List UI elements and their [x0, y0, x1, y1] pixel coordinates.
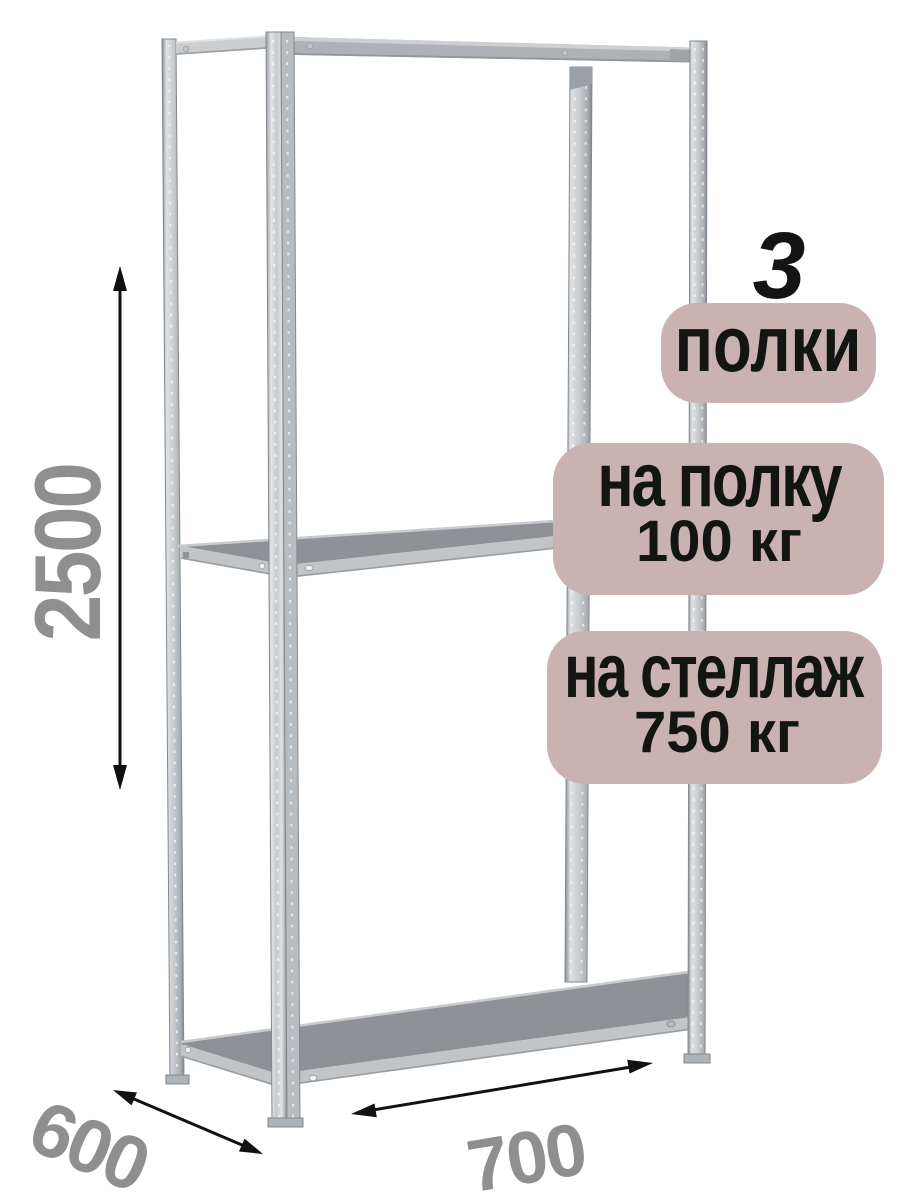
svg-text:полки: полки [675, 301, 862, 389]
svg-text:2500: 2500 [15, 465, 120, 642]
svg-text:750 кг: 750 кг [634, 700, 800, 765]
svg-text:100 кг: 100 кг [636, 509, 802, 574]
